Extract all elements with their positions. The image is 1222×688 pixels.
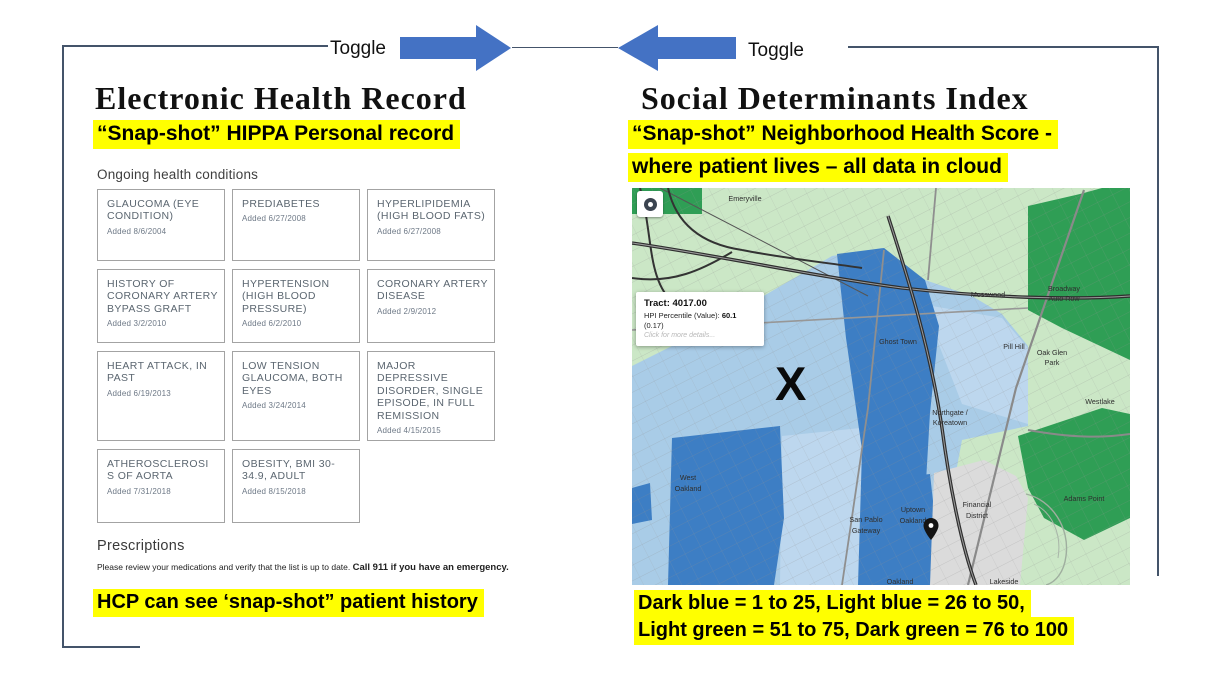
condition-card[interactable]: LOW TENSION GLAUCOMA, BOTH EYESAdded 3/2… <box>232 351 360 441</box>
sdi-subtitle-line2: where patient lives – all data in cloud <box>628 153 1008 182</box>
map-label-northgate-koreatown: Northgate / <box>932 408 968 417</box>
sdi-subtitle-line1: “Snap-shot” Neighborhood Health Score - <box>628 120 1058 149</box>
frame-top-left-segment <box>62 45 328 47</box>
ehr-title: Electronic Health Record <box>95 80 467 117</box>
ehr-footer-note: HCP can see ‘snap-shot” patient history <box>93 589 484 617</box>
map-label-uptown-oakland: Oakland <box>900 516 927 525</box>
map-label-broadway-auto-row: Broadway <box>1048 284 1080 293</box>
tooltip-hpi-secondary: (0.17) <box>644 321 757 331</box>
condition-card[interactable]: ATHEROSCLEROSI S OF AORTAAdded 7/31/2018 <box>97 449 225 523</box>
map-label-northgate-koreatown: Koreatown <box>933 418 967 427</box>
toggle-right-arrow-icon[interactable] <box>400 24 512 72</box>
condition-card[interactable]: CORONARY ARTERY DISEASEAdded 2/9/2012 <box>367 269 495 343</box>
map-x-marker: X <box>775 356 806 411</box>
map-label-lakeside: Lakeside <box>990 577 1019 585</box>
tooltip-tract-id: Tract: 4017.00 <box>644 298 757 311</box>
map-label-ghost-town: Ghost Town <box>879 337 917 346</box>
condition-card[interactable]: HYPERTENSION (HIGH BLOOD PRESSURE)Added … <box>232 269 360 343</box>
map-label-pill-hill: Pill Hill <box>1003 342 1025 351</box>
tooltip-hpi-value: 60.1 <box>722 311 737 320</box>
prescriptions-header: Prescriptions <box>97 538 185 554</box>
sdi-legend-line2: Light green = 51 to 75, Dark green = 76 … <box>634 617 1074 645</box>
prescriptions-note: Please review your medications and verif… <box>97 562 509 573</box>
map-label-uptown-oakland: Uptown <box>901 505 925 514</box>
map-label-broadway-auto-row: Auto Row <box>1048 294 1080 303</box>
map-label-oak-glen-park: Park <box>1045 358 1060 367</box>
map-label-mosswood: Mosswood <box>971 290 1005 299</box>
prescriptions-note-text: Please review your medications and verif… <box>97 562 353 572</box>
map-label-emeryville: Emeryville <box>728 194 761 203</box>
conditions-grid: GLAUCOMA (EYE CONDITION)Added 8/6/2004 P… <box>97 189 495 523</box>
tract-tooltip: Tract: 4017.00 HPI Percentile (Value): 6… <box>636 292 764 346</box>
condition-card[interactable]: OBESITY, BMI 30-34.9, ADULTAdded 8/15/20… <box>232 449 360 523</box>
prescriptions-note-emergency: Call 911 if you have an emergency. <box>353 562 509 573</box>
condition-card[interactable]: HYPERLIPIDEMIA (HIGH BLOOD FATS)Added 6/… <box>367 189 495 261</box>
condition-card[interactable]: PREDIABETESAdded 6/27/2008 <box>232 189 360 261</box>
map-label-adams-point: Adams Point <box>1064 494 1105 503</box>
condition-card[interactable]: HISTORY OF CORONARY ARTERY BYPASS GRAFTA… <box>97 269 225 343</box>
sdi-title: Social Determinants Index <box>641 80 1029 117</box>
map-label-west-oakland: Oakland <box>675 484 702 493</box>
map-label-oak-glen-park: Oak Glen <box>1037 348 1067 357</box>
frame-right-edge <box>1157 46 1159 576</box>
map-label-san-pablo-gateway: Gateway <box>852 526 881 535</box>
frame-top-right-segment <box>848 46 1158 48</box>
map-label-west-oakland: West <box>680 473 696 482</box>
map-label-financial-district: Financial <box>963 500 992 509</box>
map-label-san-pablo-gateway: San Pablo <box>849 515 882 524</box>
sdi-map[interactable]: Emeryville Mosswood Broadway Auto Row Gh… <box>632 188 1130 585</box>
map-label-financial-district: District <box>966 511 988 520</box>
toggle-right-label: Toggle <box>748 40 804 62</box>
condition-card[interactable]: HEART ATTACK, IN PASTAdded 6/19/2013 <box>97 351 225 441</box>
frame-bottom-left-segment <box>62 646 140 648</box>
toggle-left-label: Toggle <box>330 38 386 60</box>
toggle-left-arrow-icon[interactable] <box>618 24 736 72</box>
ehr-subtitle: “Snap-shot” HIPPA Personal record <box>93 120 460 149</box>
map-locate-button[interactable] <box>637 191 663 217</box>
sdi-legend-line1: Dark blue = 1 to 25, Light blue = 26 to … <box>634 590 1031 618</box>
tooltip-hpi-label: HPI Percentile (Value): <box>644 311 722 320</box>
frame-left-edge <box>62 45 64 648</box>
condition-card[interactable]: MAJOR DEPRESSIVE DISORDER, SINGLE EPISOD… <box>367 351 495 441</box>
locate-icon <box>644 198 657 211</box>
map-label-westlake: Westlake <box>1085 397 1114 406</box>
tooltip-details-link[interactable]: Click for more details... <box>644 331 757 340</box>
condition-card[interactable]: GLAUCOMA (EYE CONDITION)Added 8/6/2004 <box>97 189 225 261</box>
conditions-header: Ongoing health conditions <box>97 167 495 182</box>
frame-arrow-connector-line <box>512 47 618 48</box>
map-label-oakland: Oakland <box>887 577 914 585</box>
sdi-map-canvas: Emeryville Mosswood Broadway Auto Row Gh… <box>632 188 1130 585</box>
